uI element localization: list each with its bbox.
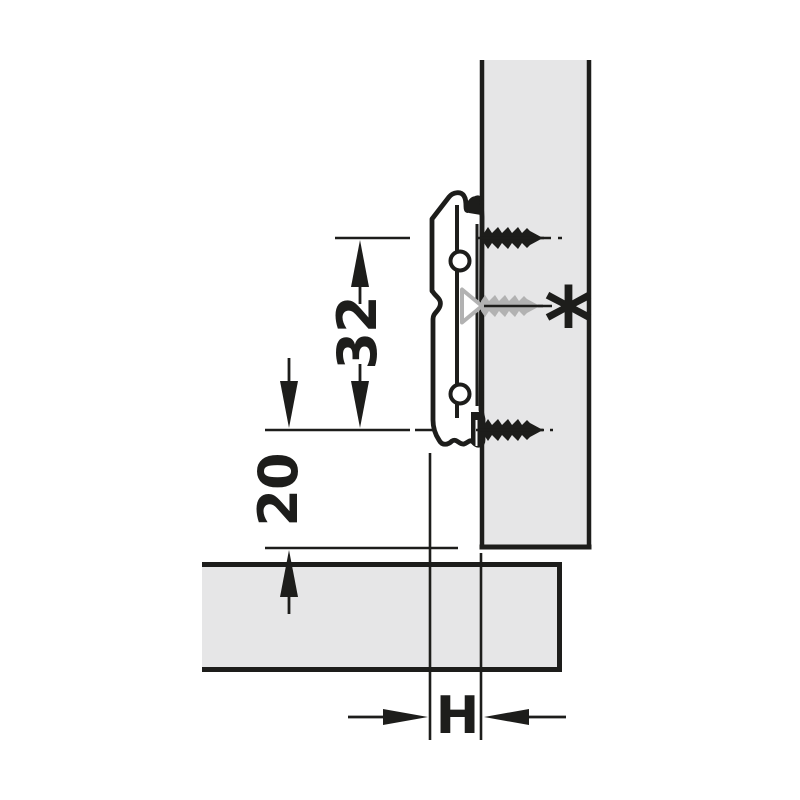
dim-20-label: 20 xyxy=(248,430,308,550)
plate-hole-top xyxy=(451,252,470,271)
mounting-plate xyxy=(432,193,483,446)
asterisk-marker: * xyxy=(542,276,594,348)
bottom-panel-surface xyxy=(202,562,559,672)
drawing-layer xyxy=(0,0,800,800)
technical-diagram: 32 20 H * xyxy=(0,0,800,800)
bottom-panel xyxy=(202,562,561,672)
dim-h-label: H xyxy=(417,688,497,744)
dim-32-label: 32 xyxy=(327,273,387,393)
dim-20-arrow-down xyxy=(280,381,298,428)
plate-hole-bottom xyxy=(451,385,470,404)
